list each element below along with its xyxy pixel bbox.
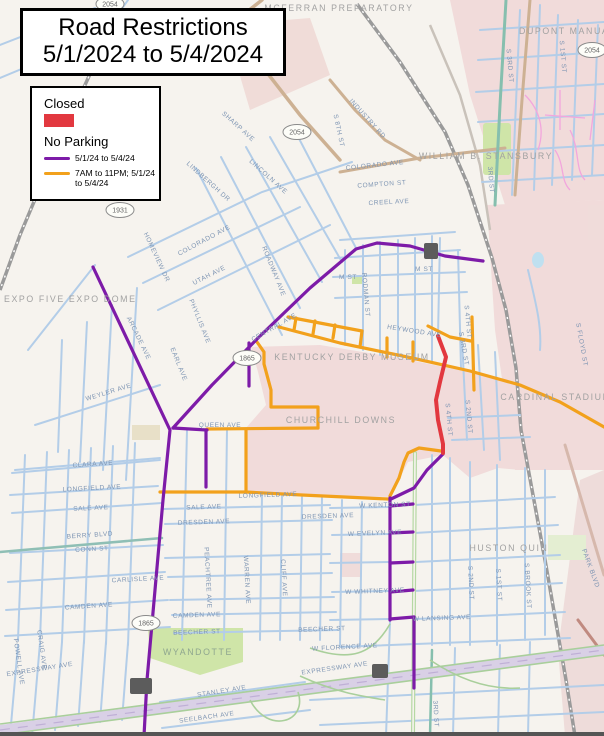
- legend-orange-line-swatch: [44, 172, 70, 175]
- route-shield-number: 1865: [239, 356, 255, 363]
- highway-facility-icon: [130, 678, 152, 694]
- transit-station-icon: [424, 243, 438, 259]
- legend-item-timed: 7AM to 11PM; 5/1/24 to 5/4/24: [44, 168, 159, 189]
- poi-label: CHURCHILL DOWNS: [286, 415, 396, 425]
- legend-item-event: 5/1/24 to 5/4/24: [44, 153, 159, 164]
- legend-no-parking-label: No Parking: [44, 134, 159, 149]
- route-shield-number: 1931: [112, 208, 128, 215]
- legend-purple-line-swatch: [44, 157, 70, 160]
- map-page: 205420542054193118651865 COLORADO AVECOM…: [0, 0, 604, 736]
- poi-label: EXPO FIVE EXPO DOME: [4, 294, 137, 304]
- legend-closed-label: Closed: [44, 96, 159, 111]
- route-shield-number: 2054: [584, 48, 600, 55]
- street-label: M ST: [415, 266, 433, 273]
- map-title-line1: Road Restrictions: [58, 15, 247, 42]
- route-shield-number: 2054: [289, 130, 305, 137]
- route-shield-number: 1865: [138, 621, 154, 628]
- street-label: SALE AVE: [186, 503, 222, 511]
- street-label: 3RD ST: [431, 700, 439, 727]
- legend-item-timed-label: 7AM to 11PM; 5/1/24 to 5/4/24: [75, 168, 157, 189]
- street-label: QUEEN AVE: [199, 422, 242, 429]
- map-bottom-edge: [0, 732, 604, 736]
- poi-label: WILLIAM B. STANSBURY: [419, 151, 553, 161]
- poi-label: WYANDOTTE: [163, 647, 233, 657]
- poi-label: CARDINAL STADIUM: [500, 392, 604, 402]
- highway-facility-icon: [372, 664, 388, 678]
- poi-label: KENTUCKY DERBY MUSEUM: [274, 352, 429, 362]
- poi-label: MCFERRAN PREPARATORY: [264, 3, 413, 13]
- street-label: M ST: [339, 274, 357, 281]
- poi-label: HUSTON QUIN: [469, 543, 548, 553]
- legend-closed-swatch: [44, 114, 74, 127]
- legend-item-event-label: 5/1/24 to 5/4/24: [75, 153, 157, 164]
- map-title-line2: 5/1/2024 to 5/4/2024: [43, 42, 263, 69]
- map-title-box: Road Restrictions 5/1/2024 to 5/4/2024: [20, 8, 286, 76]
- poi-label: DUPONT MANUAL H: [519, 26, 604, 36]
- legend: Closed No Parking 5/1/24 to 5/4/24 7AM t…: [30, 86, 161, 201]
